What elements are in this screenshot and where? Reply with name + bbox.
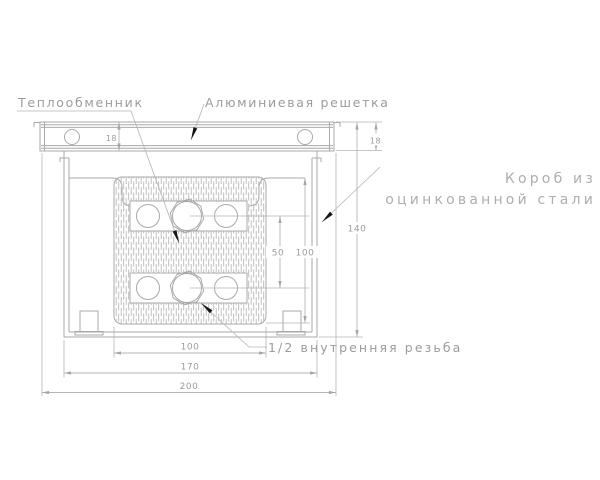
dim-grille-height-right: 18 [366, 123, 385, 151]
dim-total-height: 140 [343, 123, 371, 338]
mounting-hole-right [298, 130, 313, 145]
dim-text-200: 200 [180, 382, 199, 392]
dim-text-18-left: 18 [106, 134, 117, 143]
grille-bar [34, 122, 340, 151]
support-foot-left [75, 311, 103, 335]
leader-arrow-aluminum-grille [191, 127, 197, 140]
dim-text-50: 50 [272, 249, 284, 259]
dim-text-100-bottom: 100 [181, 343, 200, 353]
label-aluminum-grille-text: Алюминиевая решетка [205, 95, 390, 110]
label-heat-exchanger-text: Теплообменник [17, 95, 144, 110]
label-thread-text: 1/2 внутренняя резьба [268, 340, 462, 355]
leader-arrow-steel-box [322, 212, 333, 222]
label-aluminum-grille: Алюминиевая решетка [191, 95, 390, 140]
dim-grille-height-left: 18 [106, 123, 119, 151]
label-steel-box: Короб из оцинкованной стали [322, 167, 596, 222]
technical-drawing-convector-section: 18 18 140 100 50 100 170 200 Теплообменн… [0, 0, 600, 480]
dim-pipe-spacing: 50 [266, 216, 290, 288]
label-steel-box-line2: оцинкованной стали [385, 192, 596, 208]
dim-box-width: 170 [64, 363, 317, 374]
dim-text-140: 140 [348, 225, 367, 235]
drawing-svg: 18 18 140 100 50 100 170 200 Теплообменн… [0, 0, 600, 480]
dim-grille-width: 200 [42, 382, 336, 393]
label-steel-box-line1: Короб из [505, 171, 596, 187]
dim-text-100-vertical: 100 [296, 249, 315, 259]
dim-text-18-right: 18 [370, 137, 381, 146]
dim-interior-height: 100 [291, 178, 319, 323]
dim-text-170: 170 [181, 363, 200, 373]
dim-core-width: 100 [114, 343, 266, 354]
mounting-hole-left [65, 130, 80, 145]
